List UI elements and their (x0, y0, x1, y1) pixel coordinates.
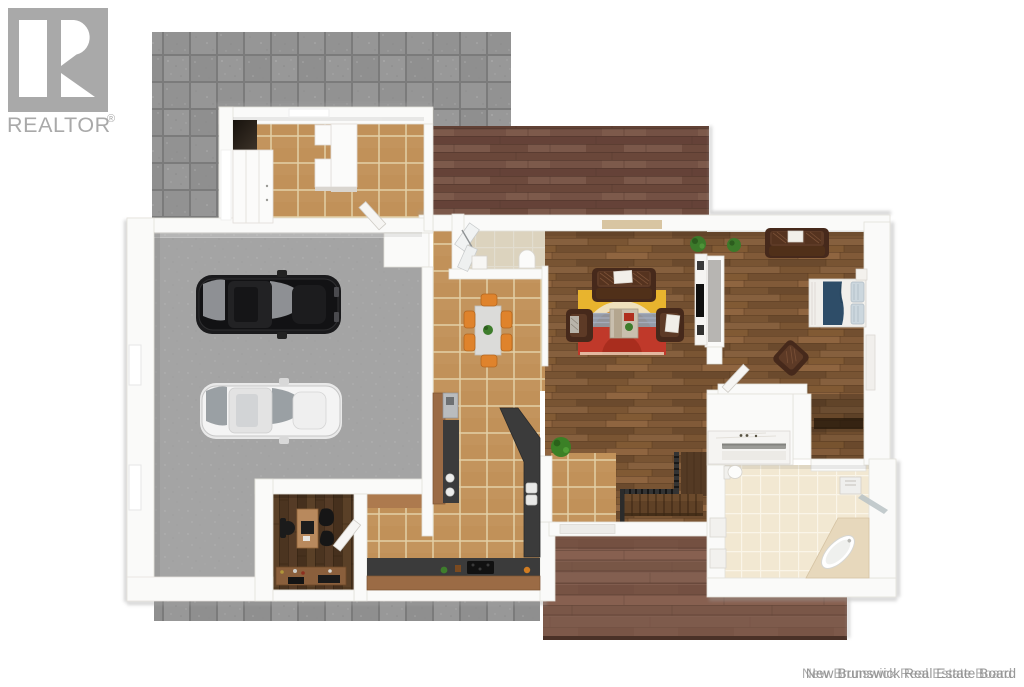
svg-text:®: ® (107, 113, 115, 125)
svg-text:REALTOR: REALTOR (7, 113, 111, 137)
svg-text:New Brunswick Real Estate Boar: New Brunswick Real Estate Board (806, 666, 1016, 681)
